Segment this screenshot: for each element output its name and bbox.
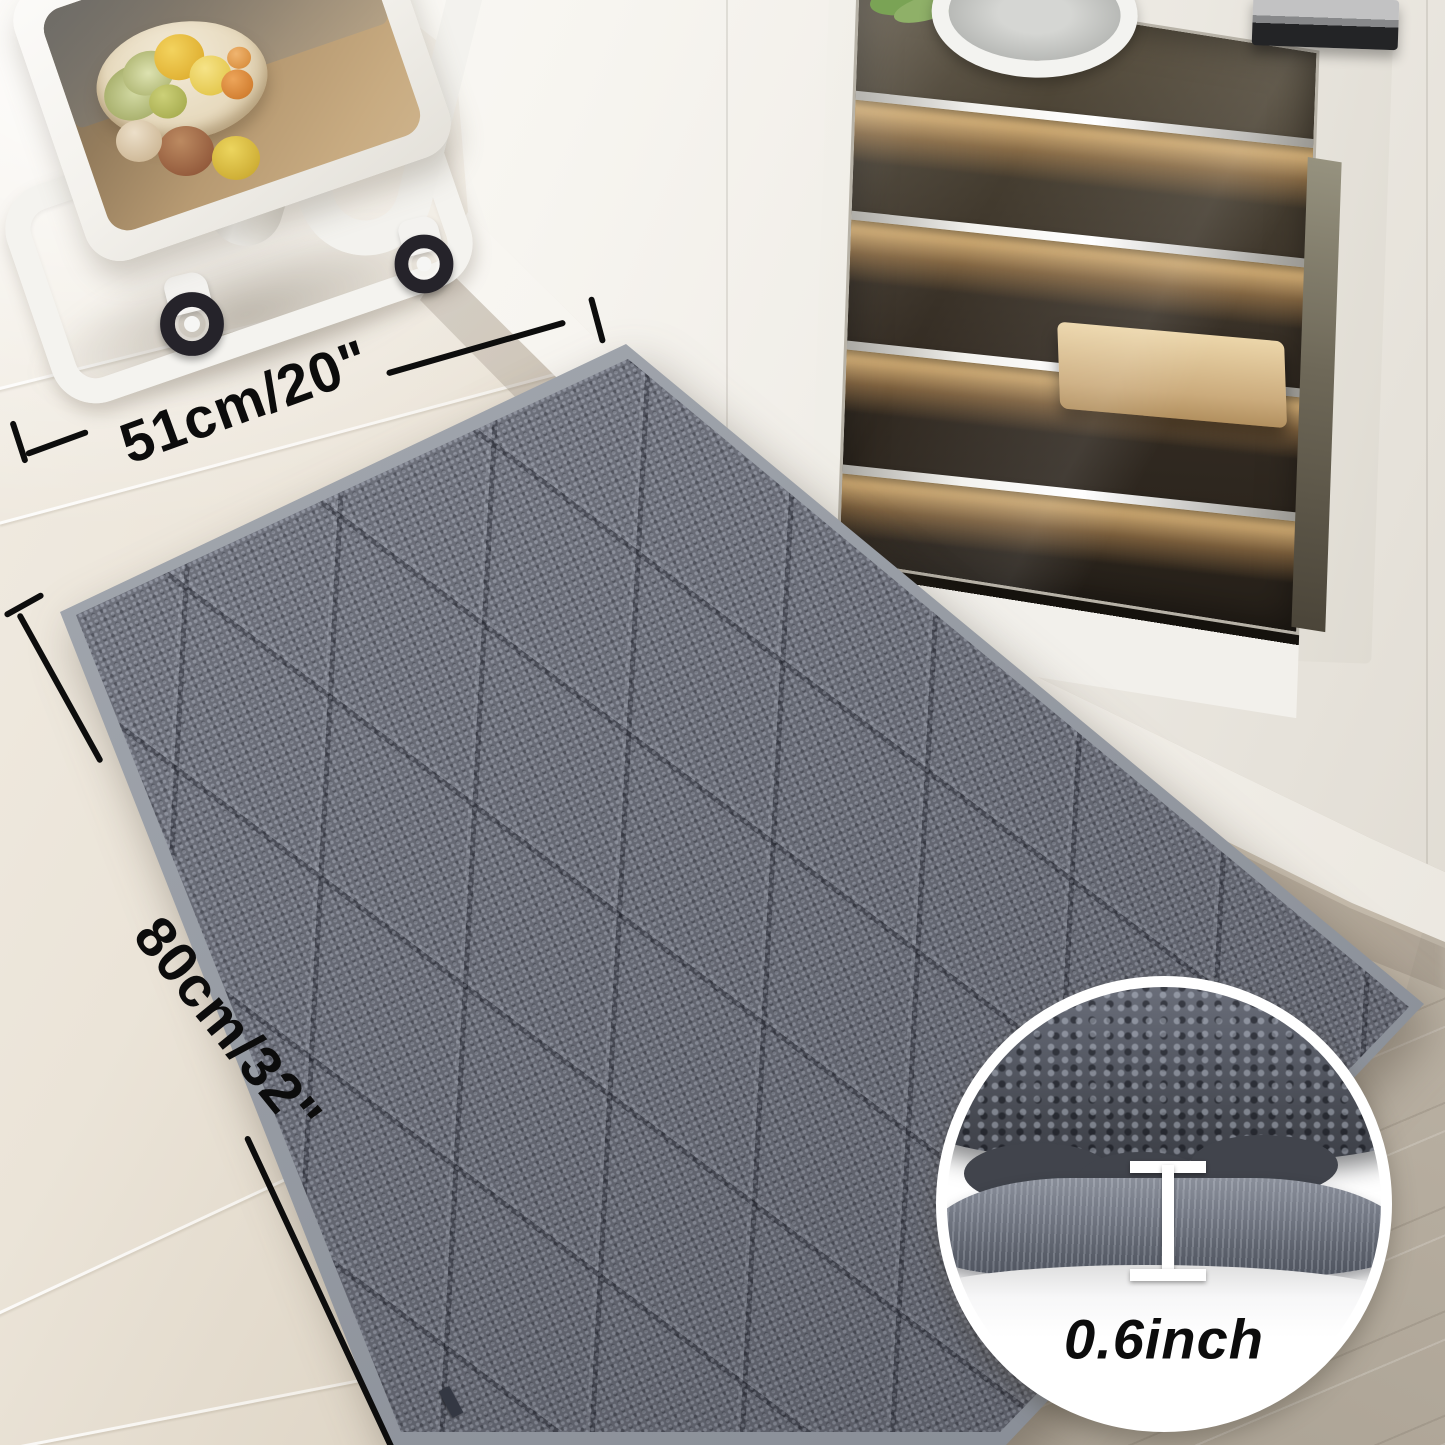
product-photo-canvas: 51cm/20" 80cm/32" 0.6inch [0, 0, 1445, 1445]
thickness-ibeam-icon [1162, 1165, 1174, 1274]
thickness-inset-circle: 0.6inch [936, 976, 1392, 1432]
thickness-label: 0.6inch [1064, 1306, 1264, 1371]
thickness-ibeam-icon [1130, 1269, 1206, 1281]
inset-mat-pile-closeup [936, 976, 1392, 1165]
